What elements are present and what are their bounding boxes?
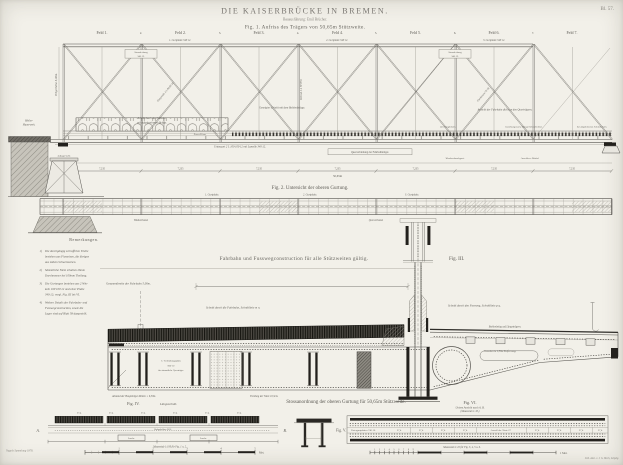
bearing-label: Auflagerstuhl.: [56, 154, 71, 157]
gurtplatte-label: 3. Gurtplatte 340·12.: [483, 39, 505, 42]
fig1-panel-label: Feld 2.: [175, 30, 186, 35]
scale-number: 5: [393, 449, 395, 451]
deck-note-right: Ansicht der Fahrbahn dicht an den Quertr…: [477, 108, 533, 111]
stoss-box-label: 340·12.: [451, 55, 459, 58]
total-span-dimension: 50,65m: [333, 174, 343, 179]
wind-label: Windverbandsgurt.: [445, 157, 464, 160]
fig6-tick-value: 27,4: [419, 429, 424, 432]
fig6-left-note: Untergurtplatten 740·10.: [351, 429, 376, 432]
panel-dimension: 7,235: [413, 168, 420, 171]
fig6-tick-value: 27,4: [463, 429, 468, 432]
fig5-label: Fig. V.: [336, 429, 346, 433]
fig1-post-number: 5.: [375, 31, 378, 35]
abutment-label: Mauerwerk.: [22, 124, 36, 127]
rivet-pitch-note: Theilung der Niete 10,5cm.: [250, 395, 279, 398]
deck-row-label: mit Belagbohlen.: [440, 126, 457, 129]
fig5-section: Fig. V.: [294, 419, 346, 448]
plate-note-line: für sämmtliche Querträger.: [158, 369, 184, 372]
fig1-panel-label: Feld 1.: [96, 30, 107, 35]
fig6-center-note: Anzahl der Niete 27.: [490, 429, 512, 432]
fig1-panel-label: Feld 7.: [566, 30, 577, 35]
fig1-post-number: 3.: [219, 31, 222, 35]
vertical-label: Vertical 2 L 70·70·8.: [300, 79, 303, 100]
note-number: 1): [40, 249, 43, 253]
splice-label: Lasche.: [200, 438, 208, 440]
wind-label: Anschluss-Winkel.: [520, 157, 540, 160]
credits: Nagels Sammlung 1878. Lith. Anst. v. J. …: [5, 450, 619, 461]
fig4-longitudinal-section: Fig. IV. Längsschnitt. 27,4 27,4 27,4 27…: [36, 401, 287, 455]
fig1-panel-label: Feld 5.: [410, 30, 421, 35]
fig2-plan-strip: Fig. 2. Untersicht der oberen Gurtung. 1…: [40, 186, 612, 222]
scale-number: 1: [374, 449, 376, 451]
abutment-label: Pfeiler-: [24, 120, 33, 123]
fig1-post-number: 7.: [532, 31, 535, 35]
masonry-block: [11, 141, 48, 197]
note-line: Die Gurtungen bestehen aus 2 Win-: [44, 282, 88, 286]
note-number: 2): [40, 268, 43, 272]
fig6-tick-value: 27,4: [441, 429, 446, 432]
plank-note: Belagbohlen 26/5.: [154, 428, 172, 431]
splice-label: Lasche.: [128, 438, 136, 440]
fig6-tick-value: 27,4: [535, 429, 540, 432]
panel-dimension: 7,235: [491, 168, 498, 171]
scale-number: 9: [413, 449, 415, 451]
fig1-panel-label: Feld 3.: [253, 30, 264, 35]
section-mark-a: A.: [36, 429, 40, 433]
footway-slope-label: Bohlenbelag auf Längsträgern.: [489, 326, 522, 329]
notes-header: Bemerkungen.: [69, 237, 98, 242]
fig6-tick-value: 27,4: [557, 429, 562, 432]
scale-unit: Met.: [259, 452, 265, 455]
diagonal-label: Diagonale 2 L 80·80·10.: [156, 81, 175, 103]
fig3-label: Fig. III.: [449, 257, 464, 262]
deck-caption: Stossanordnung der oberen Gurtung für 50…: [286, 400, 405, 405]
fig4-label: Fig. IV.: [127, 401, 140, 406]
bottom-chord: [50, 140, 612, 143]
fig2-below-label: Windverband.: [134, 219, 149, 222]
fig2-above-label: 3. Gurtplatte.: [405, 193, 419, 196]
height-dimension: Trägerhöhe 5,00m.: [54, 73, 59, 96]
gurtplatte-label: 2. Gurtplatte 340·12.: [326, 39, 348, 42]
scale-number: 3: [186, 448, 188, 451]
stoss-box-label: Stossdeckung: [134, 51, 148, 54]
fig6-bottom-view: Fig. VI. Untere Ansicht nach A. B. (Maas…: [347, 400, 608, 455]
note-number: 4): [40, 301, 43, 305]
panel-dimension: 7,235: [335, 168, 342, 171]
panel-dimension: 7,235: [178, 168, 185, 171]
section-line-foot: Schnitt durch den Fussweg, Schnittlinie …: [448, 303, 501, 308]
fig2-caption: Fig. 2. Untersicht der oberen Gurtung.: [272, 186, 349, 191]
section-line-road: Schnitt durch die Fahrbahn, Schnittlinie…: [206, 306, 260, 311]
pier-foundation: [33, 217, 97, 233]
plate-note-line: C. Verbindungsplatte: [161, 360, 181, 363]
scale-number: 7: [403, 449, 405, 451]
engineering-plate-drawing: DIE KAISERBRÜCKE IN BREMEN. Bauausführun…: [0, 0, 623, 465]
fig6-tick-value: 27,4: [598, 429, 603, 432]
fig2-above-label: 1. Gurtplatte.: [205, 193, 219, 196]
note-number: 3): [40, 282, 43, 286]
deck-row-label: bei abgehobenen Schutzbohlen.: [577, 126, 608, 129]
fig3-section-caption: Fahrbahn und Fusswegconstruction für all…: [220, 255, 369, 262]
fig4-scale-label: Maassstab 1:100 für Fig. 1 u. 2.: [152, 446, 187, 449]
fig1-elevation: Feld 1. Feld 2. Feld 3. Feld 4. Feld 5. …: [50, 30, 620, 179]
note-line: Durchmesser bei 100mm Theilung.: [44, 274, 87, 278]
stoss-box-label: 340·12.: [137, 55, 145, 58]
bottom-chord-label: Untergurt 2 L 100·100·12 mit Lamelle 340…: [214, 146, 266, 149]
title-block: DIE KAISERBRÜCKE IN BREMEN. Bauausführun…: [221, 7, 614, 31]
scale-number: 1: [118, 448, 120, 451]
diagonal-label: Flacheisen 70·10.: [476, 86, 491, 103]
deck-cross-section: C. Verbindungsplatte 800·10 für sämmtlic…: [108, 303, 618, 405]
scale-number: 5: [254, 448, 256, 451]
credit-right: Lith. Anst. v. J. G. Bach, Leipzig.: [584, 457, 619, 460]
fig1-panel-label: Feld 6.: [488, 30, 499, 35]
fig6-label: Fig. VI.: [463, 400, 476, 405]
crossgirder-box-label: Querverbindung der Fahrbahnträger.: [351, 151, 389, 154]
deck-row-label: beziehungsweise Belags-Schutzbohlen.: [505, 126, 543, 129]
gurtplatte-label: 1. Gurtplatte 340·12.: [169, 39, 191, 42]
fig4-band-value: 27,4: [237, 412, 242, 415]
note-line: Die durchgängig schraffirten Theile: [44, 249, 89, 253]
deck-note-center: Geneigter Schnitt mit dem Bohlenbelage.: [259, 107, 305, 110]
note-line: bestehen aus Flusseisen, die übrigen: [45, 255, 90, 260]
note-line: Sämmtliche Niete erhalten 26mm: [45, 268, 86, 272]
fig2-below-label: Querverband.: [369, 219, 384, 222]
girder-spacing-dimension: Abstand der Hauptträger-Mitten = 6,50m.: [111, 395, 156, 398]
note-line: keln 100·100·12 und einer Platte: [45, 287, 85, 291]
plate-note-line: 800·10: [168, 364, 176, 367]
fig4-band-value: 27,4: [77, 412, 82, 415]
fig1-post-number: 6.: [454, 31, 457, 35]
drawing-sheet: DIE KAISERBRÜCKE IN BREMEN. Bauausführun…: [0, 0, 623, 465]
notes-block: Bemerkungen. 1) Die durchgängig schraffi…: [40, 237, 99, 316]
panel-dimension: 7,235: [256, 168, 263, 171]
section-mark-b: B.: [284, 429, 287, 433]
plank-band: [108, 325, 404, 342]
fig1-post-number: 4.: [297, 31, 300, 35]
plate-number: Bl. 57.: [601, 7, 614, 12]
fig6-tick-value: 27,4: [397, 429, 402, 432]
scale-number: 8: [408, 449, 410, 451]
fig4-band-value: 27,4: [141, 412, 146, 415]
roadway-dimension: Gesammtbreite der Fahrbahn 5,00m.: [106, 282, 151, 287]
page-subtitle: Bauausführung: Emil Brücher.: [283, 18, 327, 22]
console-label: Consolen in 1,50m Entfernung.: [484, 350, 517, 353]
deck-plank-band: [232, 131, 612, 136]
stoss-box-label: Stossdeckung: [448, 51, 462, 54]
scale-number: 4: [389, 449, 391, 451]
fig6-scale-label: Maassstab 1:10 für Fig. 3, 4, 5 u. 6.: [442, 446, 481, 449]
credit-left: Nagels Sammlung 1878.: [5, 450, 34, 453]
note-line: Fusswegconstruction, sowie die: [44, 306, 84, 311]
scale-unit: 1 Met.: [560, 452, 568, 455]
note-line: Lager sind auf Blatt 58 dargestellt.: [44, 312, 87, 316]
railing-note: mit aufgebrochenem Belage.: [137, 122, 167, 125]
crossgirder-section: [357, 352, 371, 388]
fig2-above-label: 2. Gurtplatte.: [303, 193, 317, 196]
fig4-band-value: 27,4: [173, 412, 178, 415]
page-title: DIE KAISERBRÜCKE IN BREMEN.: [221, 7, 389, 16]
scale-number: 4: [220, 448, 222, 451]
lightening-hole: [433, 347, 471, 385]
fig4-band-value: 27,4: [109, 412, 114, 415]
note-line: 340·12; vergl. Fig. III bis VI.: [45, 293, 80, 297]
scale-number: 2: [379, 449, 381, 451]
scale-number: 6: [398, 449, 400, 451]
railing-note: Schnitt durch das Geländer: [138, 117, 167, 120]
fig1-panel-label: Feld 4.: [332, 30, 343, 35]
panel-dimension: 7,235: [99, 168, 106, 171]
fig1-post-number: 2.: [140, 31, 143, 35]
note-line: Weitere Details der Fahrbahn- und: [45, 301, 88, 305]
note-line: aus zähem Schweisseisen.: [45, 260, 76, 264]
masonry-cap: [9, 137, 51, 143]
fig4-subtitle: Längsschnitt.: [159, 402, 177, 406]
fig6-scale-note: (Maassstab 1:10.): [460, 410, 479, 413]
panel-dimension: 7,235: [569, 168, 576, 171]
zores-label: Zores-Eisen.: [194, 133, 207, 136]
fig4-band-value: 27,4: [205, 412, 210, 415]
scale-number: 3: [384, 449, 386, 451]
fig6-tick-value: 27,4: [579, 429, 584, 432]
